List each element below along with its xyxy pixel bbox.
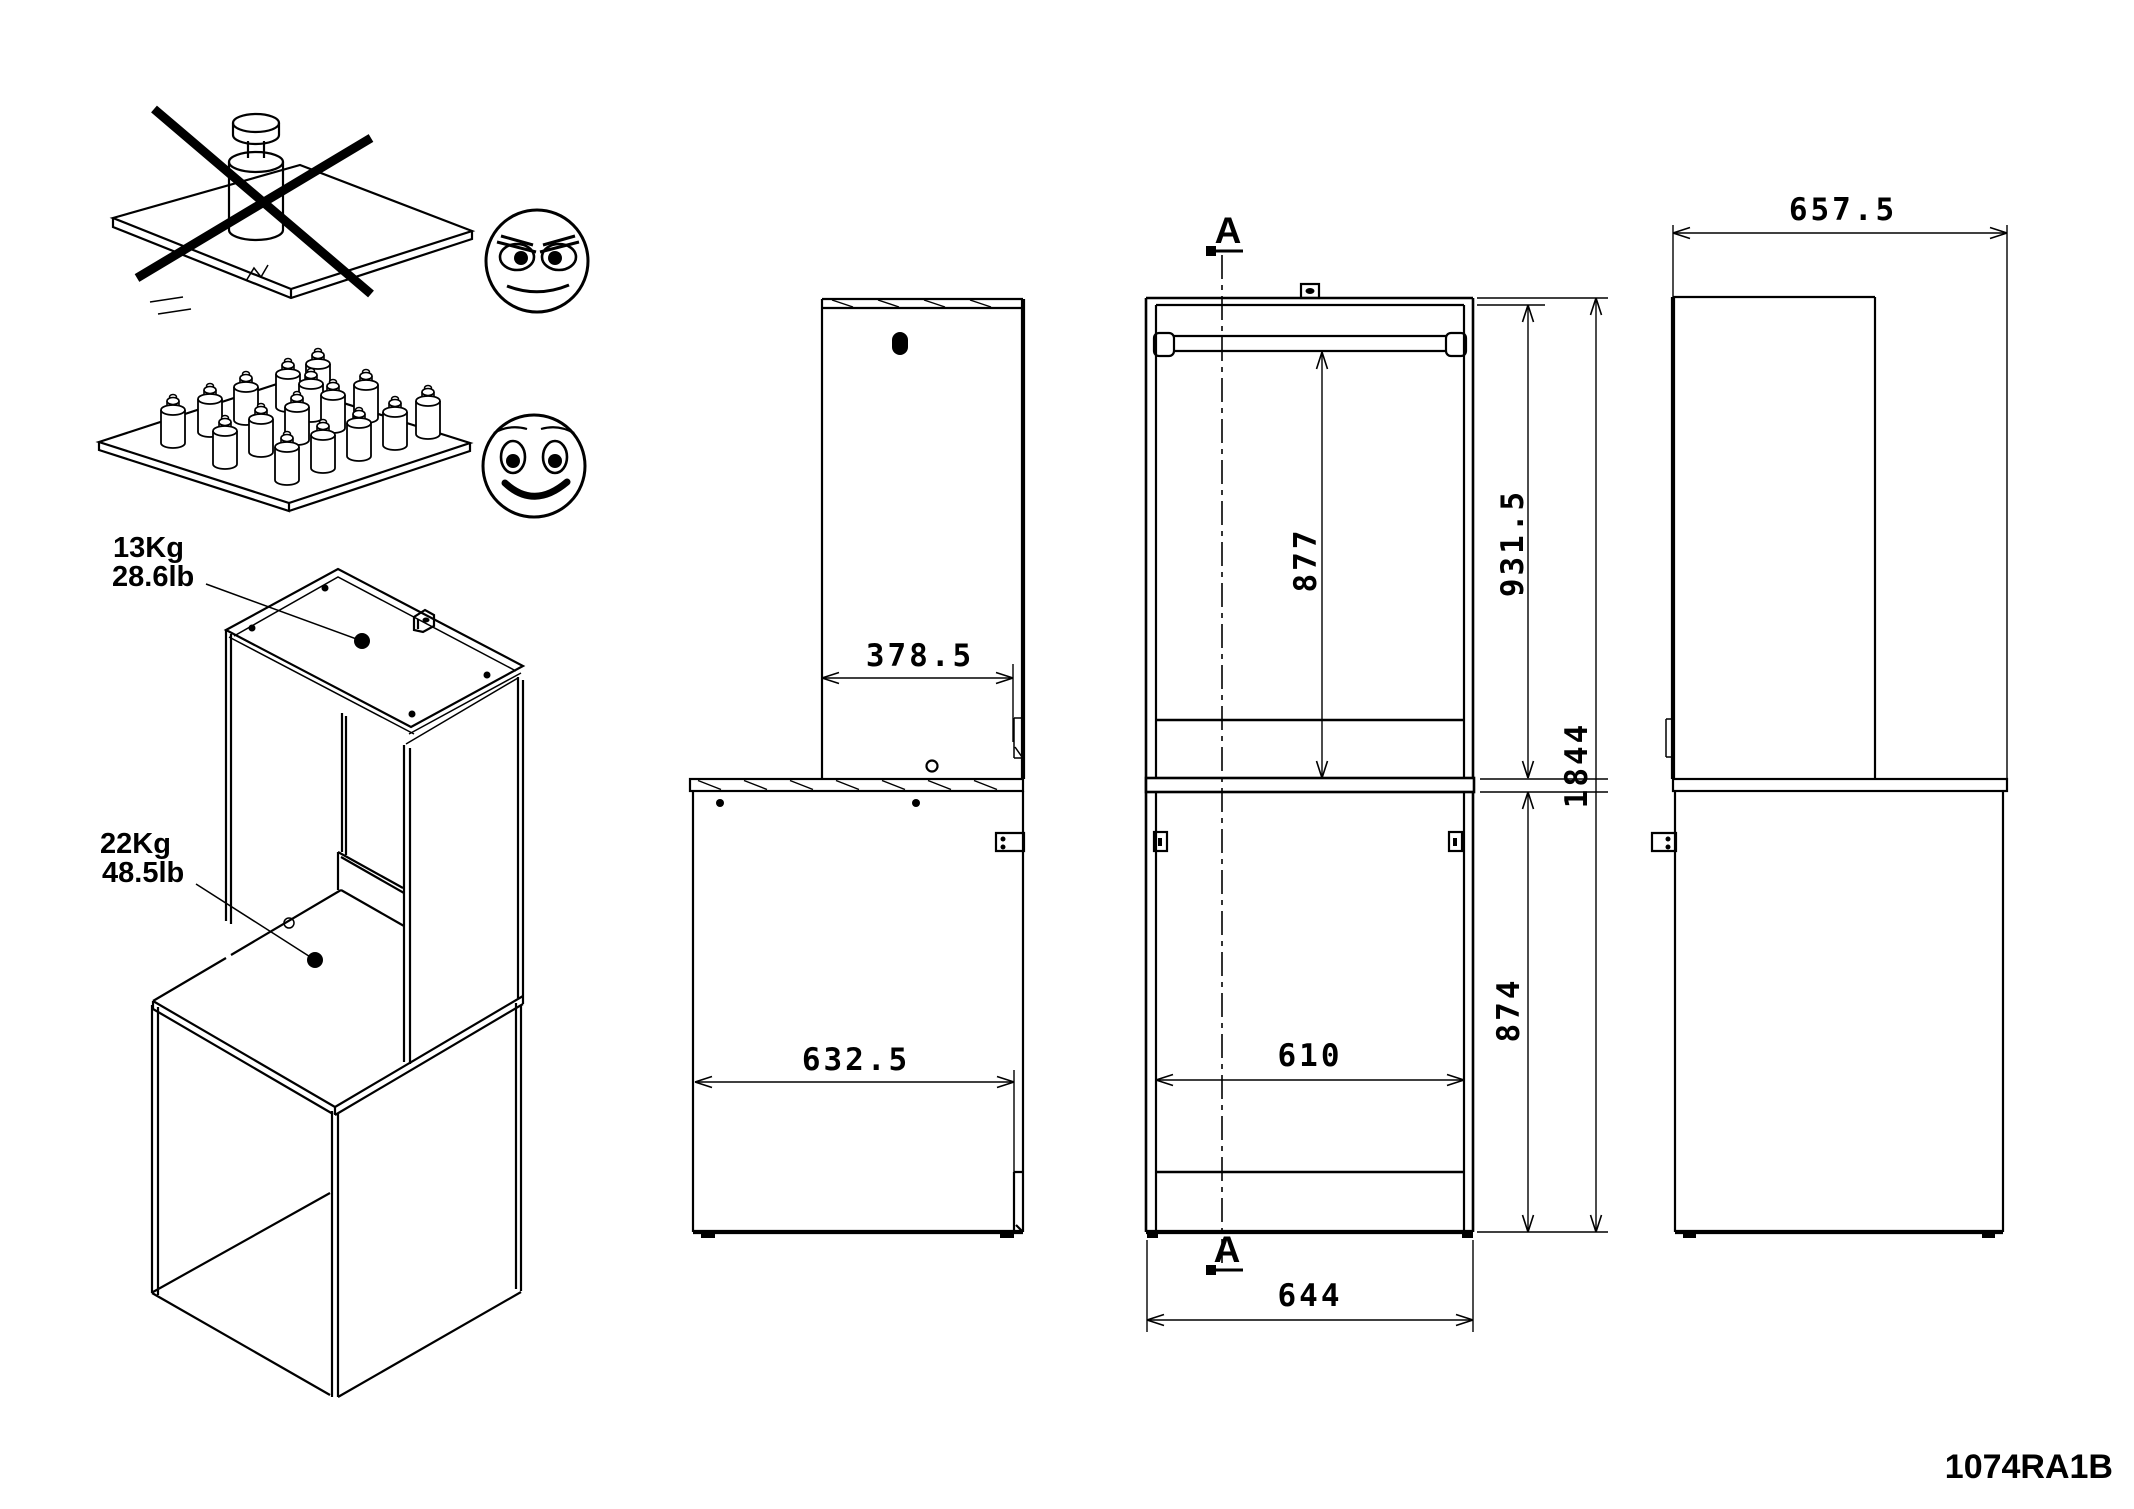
dim-tower-depth: 378.5	[866, 638, 974, 674]
dim-upper-inner-height: 877	[1288, 528, 1324, 593]
distributed-weights-icon	[161, 349, 440, 486]
technical-drawing-page: 13Kg 28.6lb 22Kg 48.5lb 378.5 632.5	[0, 0, 2134, 1509]
dim-total-width: 644	[1278, 1278, 1343, 1314]
isometric-view: 13Kg 28.6lb 22Kg 48.5lb	[100, 532, 523, 1397]
top-bracket-icon	[1301, 284, 1319, 298]
dim-cabinet-depth: 632.5	[802, 1042, 910, 1078]
warning-distributed-illustration	[99, 349, 585, 518]
dim-total-height: 1844	[1559, 722, 1595, 809]
desk-load-lb-label: 48.5lb	[102, 857, 184, 889]
side-view-right: 657.5	[1652, 192, 2007, 1238]
top-load-kg-label: 13Kg	[113, 532, 184, 564]
dim-lower-height: 874	[1491, 978, 1527, 1043]
dim-upper-height: 931.5	[1495, 489, 1531, 597]
section-label-bottom: A	[1214, 1229, 1241, 1270]
keyhole-slot	[892, 332, 908, 355]
angry-face-icon	[486, 210, 588, 312]
happy-face-icon	[483, 415, 585, 517]
warning-overload-illustration	[113, 109, 588, 314]
drawing-canvas: 13Kg 28.6lb 22Kg 48.5lb 378.5 632.5	[0, 0, 2134, 1509]
dim-total-depth: 657.5	[1789, 192, 1897, 228]
part-number: 1074RA1B	[1945, 1448, 2113, 1486]
dim-inner-width: 610	[1278, 1038, 1343, 1074]
side-view-left: 378.5 632.5	[690, 299, 1024, 1238]
desk-load-kg-label: 22Kg	[100, 828, 171, 860]
section-label-top: A	[1215, 210, 1242, 251]
top-load-lb-label: 28.6lb	[112, 561, 194, 593]
